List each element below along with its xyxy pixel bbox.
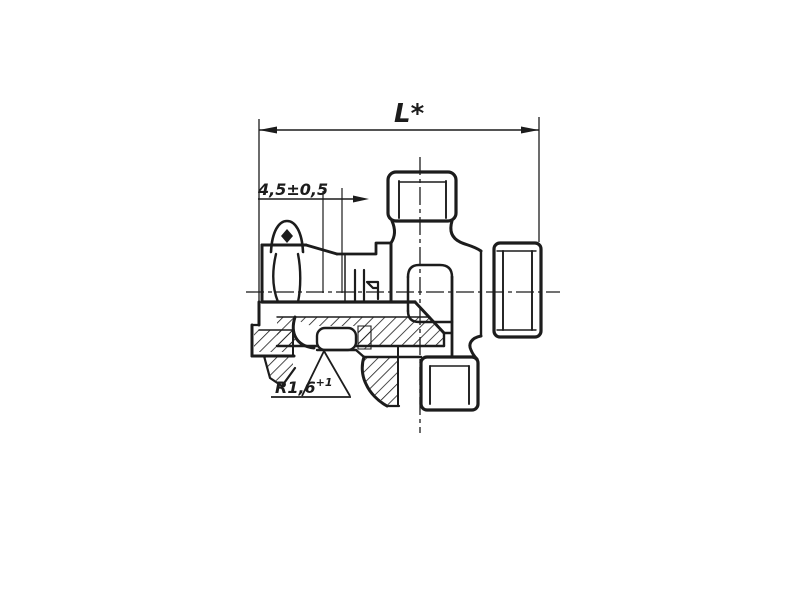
paper-background bbox=[0, 0, 800, 600]
hatch-flange bbox=[254, 330, 293, 352]
engineering-drawing: L* 4,5±0,5 R1,6+1 bbox=[0, 0, 800, 600]
dim-label-overall-length: L* bbox=[394, 99, 425, 129]
radius-value: R1,6 bbox=[275, 378, 316, 397]
screenshot-root: L* 4,5±0,5 R1,6+1 bbox=[0, 0, 800, 600]
dim-label-face-offset: 4,5±0,5 bbox=[257, 180, 328, 199]
radius-tolerance-sup: +1 bbox=[316, 376, 333, 389]
